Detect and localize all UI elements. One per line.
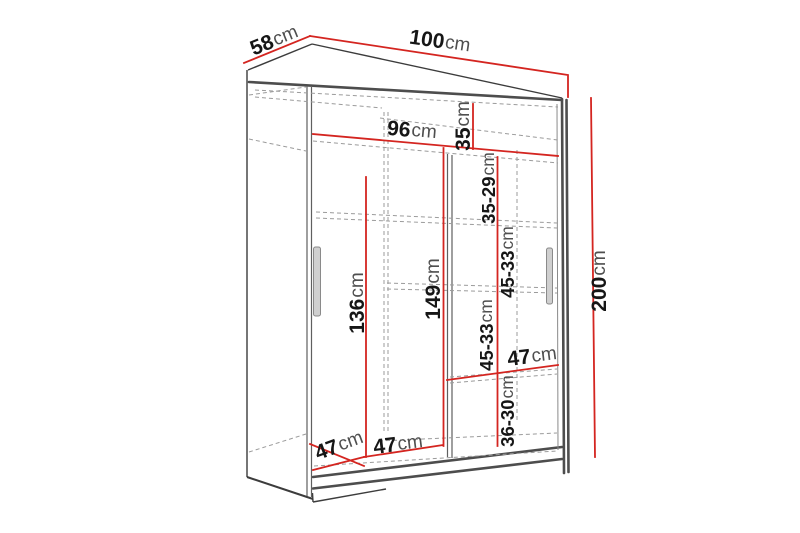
side-panel-shelf-edge <box>249 139 306 151</box>
label-floor-mid: 47cm <box>372 430 424 459</box>
right-door-handle <box>547 248 553 304</box>
right-front-edge-inner <box>567 100 569 472</box>
shelf-3-front-edge <box>387 283 557 288</box>
hanging-rail-front <box>316 212 557 223</box>
label-gap4: 36-30cm <box>497 375 518 447</box>
label-interior-width: 96cm <box>386 116 438 143</box>
side-panel-floor-edge <box>249 434 306 452</box>
hanging-rail-back <box>316 218 557 228</box>
top-front-edge <box>249 82 562 100</box>
label-top-gap: 35cm <box>452 101 475 151</box>
dimension-lines <box>244 36 595 470</box>
label-mid-height: 149cm <box>422 258 445 319</box>
ceiling-back-edge <box>255 90 558 107</box>
right-front-edge-outer <box>562 99 564 473</box>
left-foot-step <box>313 493 314 502</box>
label-depth: 58cm <box>247 20 302 60</box>
label-total-height: 200cm <box>588 250 611 311</box>
label-gap3: 45-33cm <box>476 299 497 371</box>
plinth-bottom-left-edge <box>313 489 386 502</box>
label-gap1: 35-29cm <box>478 152 499 224</box>
diagram-canvas: 58cm 100cm 96cm 35cm 35-29cm 45-33cm 45-… <box>0 0 800 533</box>
wardrobe-dimension-diagram: 58cm 100cm 96cm 35cm 35-29cm 45-33cm 45-… <box>0 0 800 533</box>
left-door-handle <box>314 247 321 316</box>
side-panel-top-edge <box>249 87 306 95</box>
ceiling-back-edge-2 <box>255 97 382 108</box>
dimension-labels: 58cm 100cm 96cm 35cm 35-29cm 45-33cm 45-… <box>247 20 611 464</box>
label-left-height: 136cm <box>346 272 369 333</box>
label-gap2: 45-33cm <box>497 226 518 298</box>
shelf-3-back-edge <box>387 289 557 293</box>
left-foot-diagonal-edge <box>247 477 313 499</box>
